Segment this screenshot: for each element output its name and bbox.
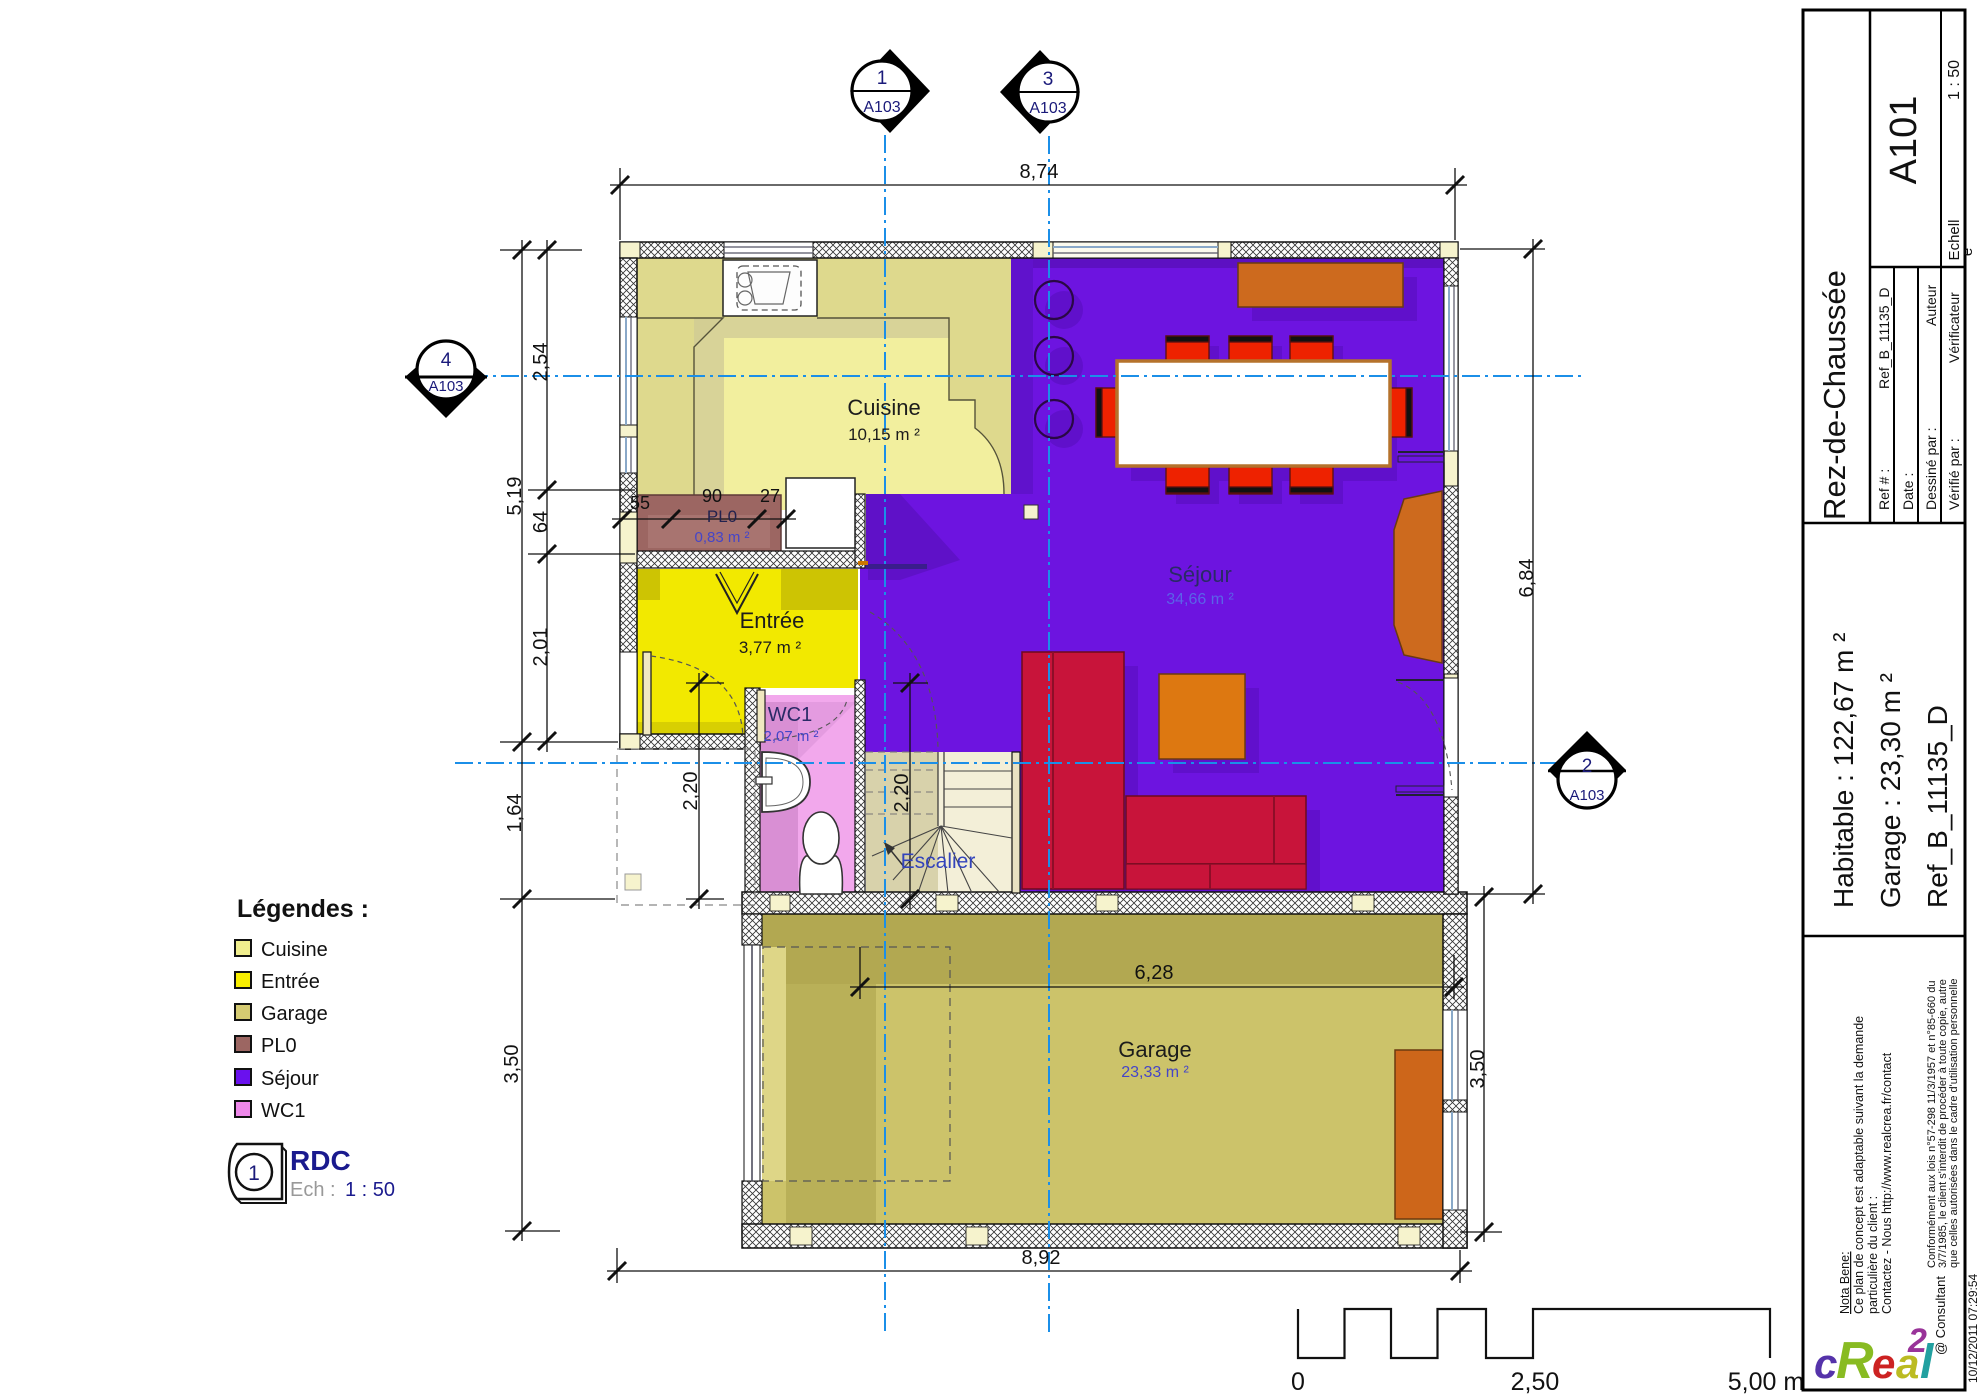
svg-text:c: c <box>1814 1340 1837 1387</box>
svg-text:Date :: Date : <box>1900 473 1916 510</box>
svg-text:R: R <box>1836 1332 1874 1390</box>
svg-text:6,84: 6,84 <box>1516 559 1538 598</box>
svg-text:3,77 m ²: 3,77 m ² <box>739 638 802 657</box>
svg-text:e: e <box>1959 248 1976 256</box>
svg-text:A103: A103 <box>863 99 900 116</box>
svg-text:23,33 m ²: 23,33 m ² <box>1121 1064 1189 1081</box>
svg-text:WC1: WC1 <box>768 704 812 726</box>
svg-text:8,74: 8,74 <box>1020 161 1059 183</box>
svg-text:Garage : 23,30 m ²: Garage : 23,30 m ² <box>1875 673 1906 908</box>
svg-text:1: 1 <box>248 1162 260 1185</box>
svg-text:A103: A103 <box>1029 100 1066 117</box>
svg-text:3,50: 3,50 <box>501 1045 523 1084</box>
svg-text:@ Consultant: @ Consultant <box>1933 1276 1948 1355</box>
svg-text:2,20: 2,20 <box>891 774 913 813</box>
svg-text:64: 64 <box>530 511 552 533</box>
svg-text:Habitable : 122,67 m ²: Habitable : 122,67 m ² <box>1828 633 1859 909</box>
svg-text:2: 2 <box>1582 756 1593 777</box>
svg-text:Nota Bene:: Nota Bene: <box>1838 1251 1852 1314</box>
svg-text:Entrée: Entrée <box>261 971 320 993</box>
svg-text:0,83 m ²: 0,83 m ² <box>694 529 749 546</box>
svg-text:3: 3 <box>1043 69 1054 90</box>
svg-text:2,54: 2,54 <box>530 343 552 382</box>
svg-text:A101: A101 <box>1883 96 1925 185</box>
svg-text:4: 4 <box>441 350 452 371</box>
svg-text:34,66 m ²: 34,66 m ² <box>1166 591 1234 608</box>
svg-text:Garage: Garage <box>1118 1037 1191 1062</box>
svg-text:Auteur: Auteur <box>1923 284 1939 326</box>
svg-text:particulière du client :: particulière du client : <box>1866 1196 1880 1314</box>
svg-text:A103: A103 <box>1569 787 1604 804</box>
svg-text:Contactez - Nous http://www.re: Contactez - Nous http://www.realcrea.fr/… <box>1880 1052 1894 1314</box>
svg-text:l: l <box>1920 1336 1935 1389</box>
svg-text:RDC: RDC <box>290 1145 351 1176</box>
svg-text:Ref_B_11135_D: Ref_B_11135_D <box>1876 288 1892 389</box>
svg-text:Garage: Garage <box>261 1003 328 1025</box>
svg-text:Entrée: Entrée <box>740 608 805 633</box>
svg-text:Séjour: Séjour <box>1168 562 1232 587</box>
svg-text:Ref_B_11135_D: Ref_B_11135_D <box>1922 705 1953 908</box>
svg-text:que celles autorisées dans le: que celles autorisées dans le cadre d'ut… <box>1948 978 1960 1268</box>
svg-text:Ref # :: Ref # : <box>1876 469 1892 510</box>
svg-text:10/12/2011 07:29:54: 10/12/2011 07:29:54 <box>1966 1273 1980 1383</box>
svg-text:90: 90 <box>702 486 722 506</box>
svg-text:0: 0 <box>1291 1368 1305 1396</box>
svg-text:Légendes :: Légendes : <box>237 895 369 923</box>
svg-text:1,64: 1,64 <box>504 794 526 833</box>
svg-text:2,01: 2,01 <box>530 628 552 667</box>
svg-text:Dessiné par :: Dessiné par : <box>1923 428 1939 510</box>
svg-text:Escalier: Escalier <box>901 850 976 873</box>
svg-text:WC1: WC1 <box>261 1100 305 1122</box>
svg-text:1 : 50: 1 : 50 <box>345 1179 395 1201</box>
svg-text:1: 1 <box>877 68 888 89</box>
svg-text:2,50: 2,50 <box>1511 1368 1560 1396</box>
svg-text:e: e <box>1872 1340 1895 1387</box>
svg-text:6,28: 6,28 <box>1135 962 1174 984</box>
svg-text:8,92: 8,92 <box>1022 1247 1061 1269</box>
svg-text:Séjour: Séjour <box>261 1068 319 1090</box>
svg-text:55: 55 <box>630 493 650 513</box>
svg-text:5,19: 5,19 <box>504 477 526 516</box>
svg-text:Cuisine: Cuisine <box>261 939 328 961</box>
svg-text:Cuisine: Cuisine <box>847 395 920 420</box>
svg-text:Ech :: Ech : <box>290 1179 336 1201</box>
svg-text:27: 27 <box>760 486 780 506</box>
svg-text:3,50: 3,50 <box>1467 1050 1489 1089</box>
svg-text:5,00 m: 5,00 m <box>1728 1368 1804 1396</box>
svg-text:Rez-de-Chaussée: Rez-de-Chaussée <box>1817 270 1852 520</box>
svg-text:1 : 50: 1 : 50 <box>1946 60 1963 100</box>
svg-text:A103: A103 <box>428 378 463 395</box>
svg-text:Vérifié par :: Vérifié par : <box>1946 438 1962 510</box>
svg-text:2,07 m ²: 2,07 m ² <box>763 728 818 745</box>
svg-text:Vérificateur: Vérificateur <box>1946 292 1962 363</box>
svg-text:Ce plan de concept est adaptab: Ce plan de concept est adaptable suivant… <box>1852 1016 1866 1314</box>
svg-text:10,15 m ²: 10,15 m ² <box>848 425 920 444</box>
svg-text:PL0: PL0 <box>261 1035 297 1057</box>
svg-text:2,20: 2,20 <box>680 772 702 811</box>
svg-text:PL0: PL0 <box>707 507 737 526</box>
